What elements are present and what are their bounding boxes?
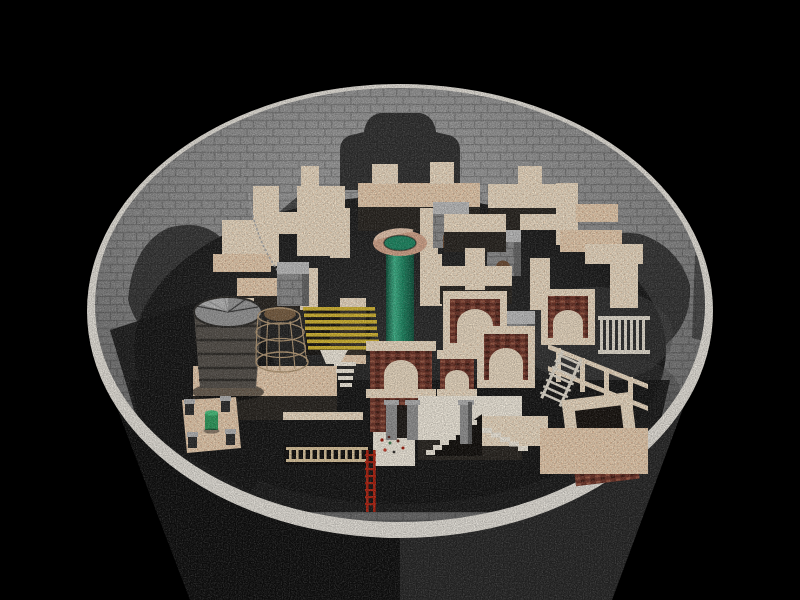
rendered-scene xyxy=(0,0,800,600)
well-maze-render xyxy=(0,0,800,600)
